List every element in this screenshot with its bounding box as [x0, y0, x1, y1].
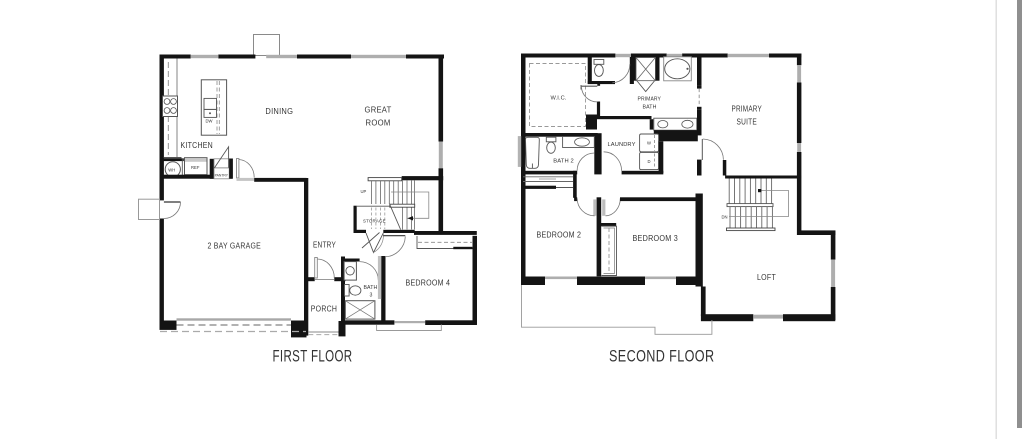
svg-text:SECOND FLOOR: SECOND FLOOR [609, 348, 715, 366]
svg-text:DINING: DINING [265, 106, 293, 116]
svg-text:2 BAY GARAGE: 2 BAY GARAGE [208, 241, 262, 251]
svg-text:PANTRY: PANTRY [215, 174, 229, 178]
svg-text:REF: REF [191, 165, 200, 170]
svg-text:SUITE: SUITE [737, 117, 758, 127]
svg-text:W.I.C.: W.I.C. [551, 96, 567, 102]
svg-text:BEDROOM 2: BEDROOM 2 [537, 229, 582, 239]
svg-text:PRIMARY: PRIMARY [638, 97, 662, 103]
svg-text:BATH 2: BATH 2 [553, 158, 574, 164]
svg-text:BEDROOM 4: BEDROOM 4 [406, 277, 451, 287]
svg-text:LAUNDRY: LAUNDRY [608, 142, 636, 148]
svg-text:GREAT: GREAT [365, 105, 392, 115]
svg-text:W: W [647, 141, 651, 146]
svg-text:LOFT: LOFT [757, 272, 776, 282]
svg-text:ENTRY: ENTRY [313, 239, 336, 249]
svg-text:UP: UP [361, 189, 367, 194]
svg-text:3: 3 [370, 293, 373, 299]
svg-text:FIRST FLOOR: FIRST FLOOR [273, 348, 353, 366]
svg-text:PORCH: PORCH [311, 303, 337, 313]
svg-text:BEDROOM 3: BEDROOM 3 [633, 233, 679, 243]
svg-text:BATH: BATH [364, 285, 378, 291]
svg-text:DN: DN [722, 215, 728, 220]
svg-text:PRIMARY: PRIMARY [732, 104, 763, 114]
svg-text:D: D [648, 159, 651, 164]
svg-text:BATH: BATH [643, 105, 657, 111]
svg-text:DW: DW [206, 119, 213, 124]
svg-text:WH: WH [168, 167, 175, 172]
svg-text:STORAGE: STORAGE [363, 218, 386, 223]
svg-text:KITCHEN: KITCHEN [181, 140, 214, 150]
svg-text:ROOM: ROOM [366, 118, 391, 128]
